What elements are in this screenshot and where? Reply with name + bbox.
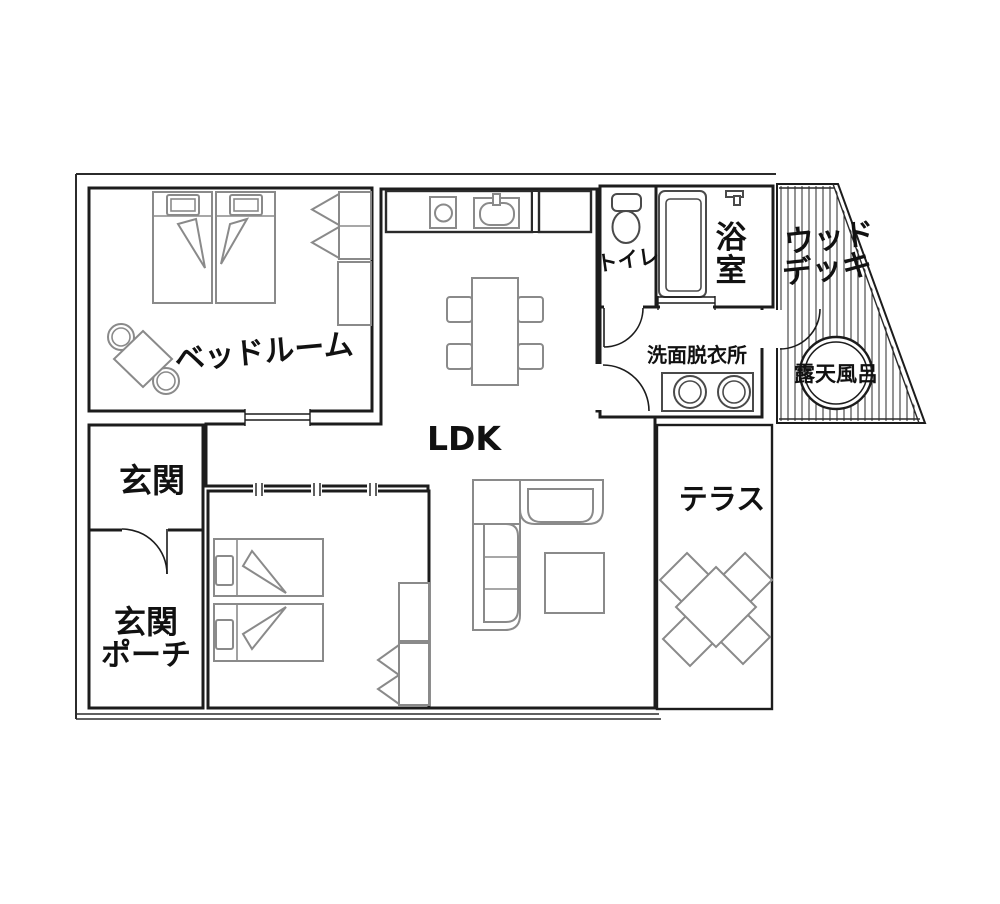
label-washroom: 洗面脱衣所 — [647, 343, 747, 367]
room-bedroom2-outline — [208, 491, 429, 708]
dining-chair-icon — [518, 297, 543, 322]
bed-icon — [216, 192, 275, 303]
pillow-icon — [216, 620, 233, 649]
toilet-icon — [612, 194, 641, 243]
kitchen-faucet-icon — [493, 194, 500, 205]
label-bathroom-char1: 浴 — [716, 220, 748, 256]
kitchen-counter-right — [539, 191, 591, 232]
sliding-door-bedroom — [245, 407, 310, 427]
dining-chair-icon — [518, 344, 543, 369]
cabinet-icon — [338, 262, 371, 325]
dining-chair-icon — [447, 344, 472, 369]
label-entrance-porch-line1: 玄関 — [114, 603, 178, 641]
bed-icon — [153, 192, 212, 303]
sofa-corner-icon — [473, 480, 520, 524]
kitchen-sink-basin-icon — [480, 203, 514, 225]
floor-plan-page: ベッドルーム LDK 玄関 玄関 ポーチ トイレ 浴 室 洗面脱衣所 ウッド デ… — [0, 0, 1000, 904]
label-bathroom-char2: 室 — [716, 253, 747, 289]
bed-icon — [214, 539, 323, 596]
label-entrance: 玄関 — [119, 461, 185, 500]
pillow-icon — [167, 195, 199, 215]
washing-machine-icon — [662, 373, 753, 411]
sofa-side-seat-icon — [484, 524, 518, 622]
stove-burner-icon — [435, 205, 452, 222]
label-ldk: LDK — [427, 419, 502, 458]
dining-table-icon — [472, 278, 518, 385]
label-entrance-porch-line2: ポーチ — [101, 638, 191, 673]
bathtub-icon — [659, 191, 706, 297]
kitchen-area — [386, 191, 591, 232]
label-terrace: テラス — [679, 482, 765, 516]
pillow-icon — [216, 556, 233, 585]
floor-plan-drawing: ベッドルーム LDK 玄関 玄関 ポーチ トイレ 浴 室 洗面脱衣所 ウッド デ… — [0, 0, 1000, 904]
living-table-icon — [545, 553, 604, 613]
dining-chair-icon — [447, 297, 472, 322]
sofa-top-seat-icon — [528, 489, 593, 522]
bed-icon — [214, 604, 323, 661]
label-open-air-bath: 露天風呂 — [794, 362, 878, 386]
room-terrace — [657, 425, 772, 709]
